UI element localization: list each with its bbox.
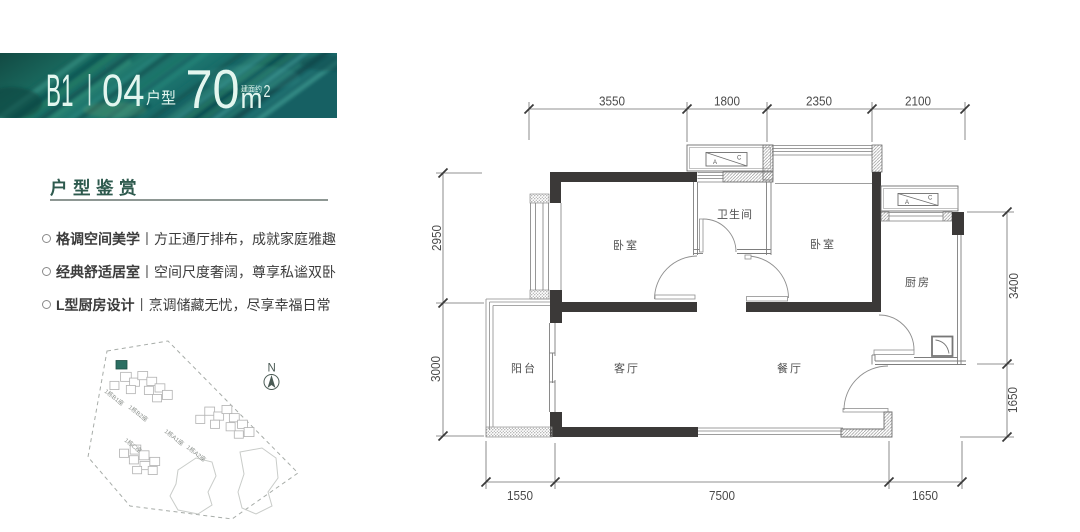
svg-text:2950: 2950	[429, 225, 444, 251]
svg-text:C: C	[737, 156, 742, 162]
svg-text:户型: 户型	[146, 90, 176, 108]
svg-text:2350: 2350	[806, 94, 832, 109]
svg-text:04: 04	[102, 65, 145, 116]
svg-text:1栋B1座: 1栋B1座	[103, 387, 126, 407]
svg-text:3400: 3400	[1006, 273, 1021, 299]
svg-text:2100: 2100	[905, 94, 931, 109]
svg-text:B1: B1	[46, 65, 74, 116]
svg-text:3550: 3550	[599, 94, 625, 109]
svg-text:7500: 7500	[709, 488, 735, 503]
svg-text:1800: 1800	[714, 94, 740, 109]
svg-text:A: A	[713, 160, 717, 166]
svg-text:卫生间: 卫生间	[717, 207, 753, 221]
svg-text:1栋A2座: 1栋A2座	[185, 443, 208, 463]
svg-text:1栋B2座: 1栋B2座	[127, 403, 150, 423]
svg-text:卧室: 卧室	[810, 237, 836, 251]
svg-text:1650: 1650	[912, 488, 938, 503]
svg-text:2: 2	[264, 81, 271, 101]
svg-text:A: A	[905, 200, 909, 206]
svg-text:m: m	[241, 83, 263, 115]
svg-text:C: C	[928, 196, 933, 202]
svg-text:客厅: 客厅	[614, 361, 640, 375]
svg-text:1550: 1550	[507, 488, 533, 503]
svg-text:阳台: 阳台	[511, 361, 537, 375]
svg-text:1栋A1座: 1栋A1座	[163, 427, 186, 447]
svg-text:餐厅: 餐厅	[777, 361, 803, 375]
svg-text:N: N	[268, 363, 276, 375]
svg-text:3000: 3000	[428, 356, 443, 382]
svg-text:厨房: 厨房	[905, 276, 931, 289]
svg-text:1650: 1650	[1005, 387, 1020, 413]
svg-text:卧室: 卧室	[613, 238, 639, 252]
svg-text:70: 70	[186, 59, 240, 118]
